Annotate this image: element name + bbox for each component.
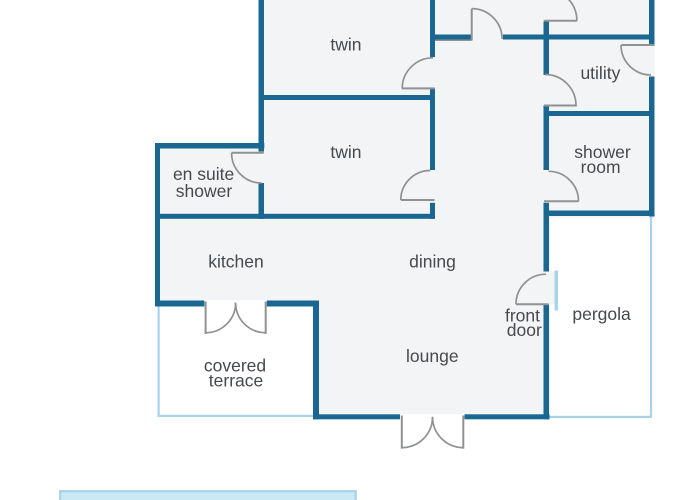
svg-text:pergola: pergola (572, 304, 631, 324)
svg-text:twin: twin (330, 142, 361, 162)
svg-text:terrace: terrace (209, 370, 263, 390)
svg-text:room: room (581, 157, 621, 177)
svg-text:kitchen: kitchen (208, 251, 263, 271)
svg-text:twin: twin (330, 35, 361, 55)
svg-text:lounge: lounge (406, 346, 459, 366)
svg-text:utility: utility (580, 63, 620, 83)
svg-text:dining: dining (409, 251, 456, 271)
svg-text:shower: shower (176, 181, 233, 201)
svg-text:door: door (507, 320, 542, 340)
